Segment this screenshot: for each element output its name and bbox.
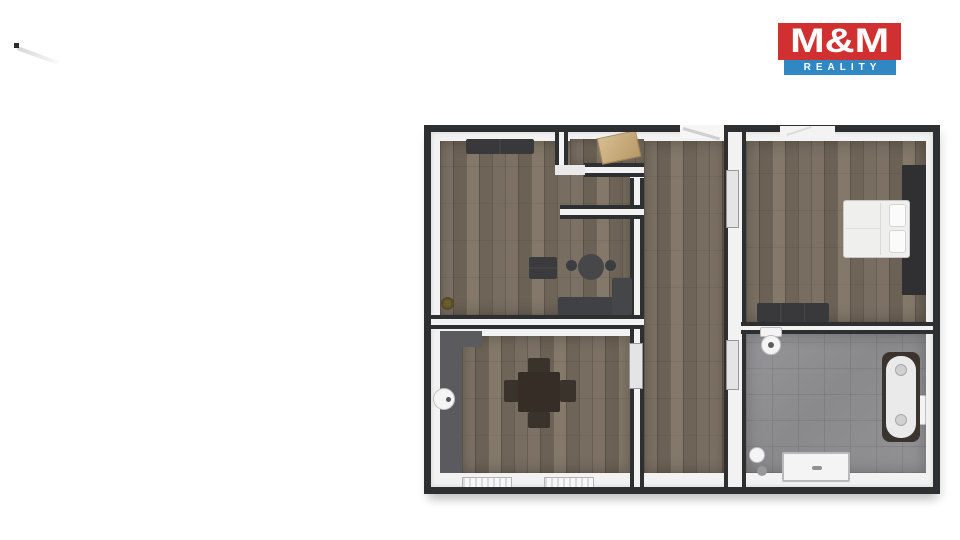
door-bathroom (726, 340, 739, 390)
plant (441, 297, 454, 310)
kitchen-counter-corner (440, 331, 482, 347)
corner-sofa-back (612, 278, 632, 315)
bedroom-window (780, 126, 835, 137)
logo-mm: M&M (778, 23, 901, 60)
door-kitchen (629, 343, 643, 389)
wall-vestibule-side (555, 132, 568, 165)
wall-corridor-left (630, 178, 644, 487)
door-bedroom (726, 170, 739, 228)
bed-seam (880, 203, 881, 255)
wall-vestibule-bottom (584, 163, 644, 177)
dining-table (518, 372, 560, 412)
armchair-pair (529, 257, 557, 279)
vestibule-threshold (555, 165, 585, 175)
floor-plan (424, 125, 940, 494)
artifact-streak (16, 46, 59, 65)
floor-drain (757, 466, 767, 476)
logo-reality-banner: REALITY (784, 60, 896, 75)
stool-right (605, 260, 616, 271)
round-table (578, 254, 604, 280)
bed-fold (846, 228, 880, 229)
bathtub-jet-top (895, 364, 907, 376)
bathtub (882, 352, 920, 442)
toilet-brush-holder (749, 447, 765, 463)
kitchen-sink-drain (446, 397, 451, 402)
stool-left (566, 260, 577, 271)
sofa-top (466, 139, 534, 154)
bathtub-jet-bottom (895, 414, 907, 426)
wall-living-kitchen (431, 315, 644, 329)
dresser (757, 303, 829, 322)
radiator-left (462, 477, 512, 488)
chair-right (560, 380, 576, 402)
kitchen-sink (433, 388, 455, 410)
pillow-bottom (889, 230, 906, 253)
logo-title: M&M (790, 23, 889, 60)
bathroom-sink-unit (782, 452, 850, 482)
wall-sofa-niche (560, 205, 644, 219)
pillow-top (889, 204, 906, 227)
window-glint (786, 126, 811, 136)
radiator-right (544, 477, 594, 488)
toilet (758, 327, 786, 357)
corridor-floor (644, 141, 725, 473)
chair-bottom (528, 412, 550, 428)
logo-subtitle: REALITY (799, 60, 882, 75)
toilet-drain (768, 342, 774, 348)
bed (843, 200, 910, 258)
sink-faucet (812, 466, 822, 470)
